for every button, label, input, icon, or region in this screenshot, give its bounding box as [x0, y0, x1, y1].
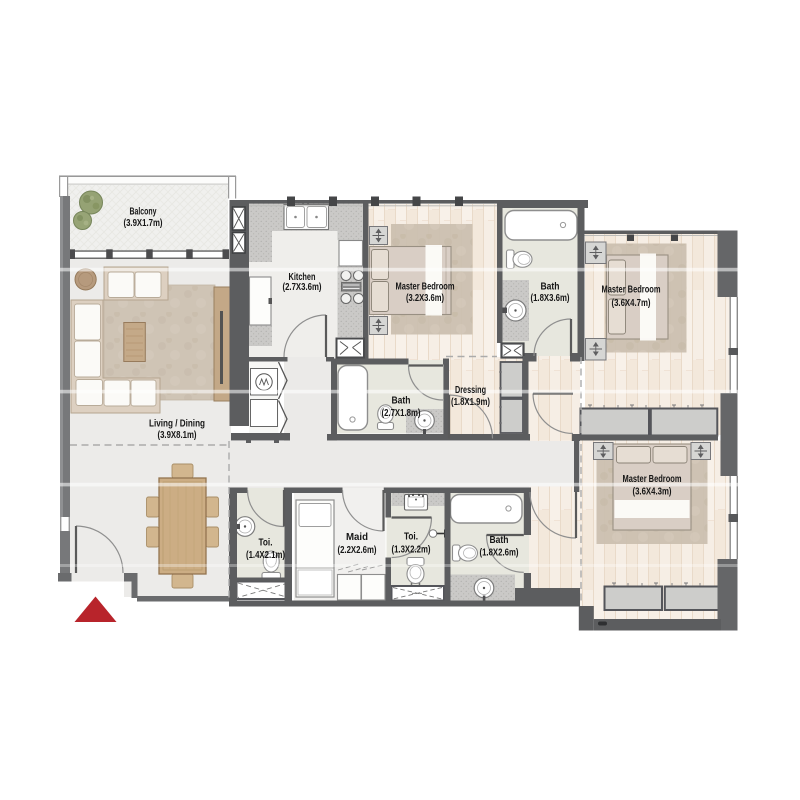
- svg-text:(2.7X3.6m): (2.7X3.6m): [283, 282, 322, 293]
- svg-text:Master Bedroom: Master Bedroom: [623, 474, 682, 485]
- svg-text:Master Bedroom: Master Bedroom: [396, 282, 455, 293]
- svg-text:(1.8X2.6m): (1.8X2.6m): [480, 548, 519, 559]
- svg-text:Toi.: Toi.: [404, 532, 418, 543]
- svg-text:(2.7X1.8m): (2.7X1.8m): [382, 408, 421, 419]
- svg-text:(3.9X1.7m): (3.9X1.7m): [124, 218, 163, 229]
- svg-text:Balcony: Balcony: [130, 207, 157, 218]
- svg-text:(1.4X2.1m): (1.4X2.1m): [246, 550, 285, 561]
- svg-text:Dressing: Dressing: [455, 385, 486, 396]
- svg-text:(1.8X3.6m): (1.8X3.6m): [531, 293, 570, 304]
- svg-text:Bath: Bath: [392, 396, 411, 407]
- svg-text:(2.2X2.6m): (2.2X2.6m): [338, 545, 377, 556]
- svg-text:(1.8X1.9m): (1.8X1.9m): [451, 397, 490, 408]
- svg-text:(3.2X3.6m): (3.2X3.6m): [406, 293, 444, 304]
- svg-text:Maid: Maid: [346, 532, 368, 543]
- svg-text:Bath: Bath: [490, 535, 509, 546]
- svg-text:(3.6X4.3m): (3.6X4.3m): [633, 487, 672, 498]
- svg-text:Toi.: Toi.: [259, 538, 273, 549]
- svg-text:Bath: Bath: [541, 282, 560, 293]
- svg-text:(1.3X2.2m): (1.3X2.2m): [392, 545, 431, 556]
- svg-text:(3.9X8.1m): (3.9X8.1m): [158, 430, 197, 441]
- svg-text:Master Bedroom: Master Bedroom: [602, 285, 661, 296]
- svg-text:(3.6X4.7m): (3.6X4.7m): [612, 298, 651, 309]
- svg-text:Living / Dining: Living / Dining: [149, 419, 205, 430]
